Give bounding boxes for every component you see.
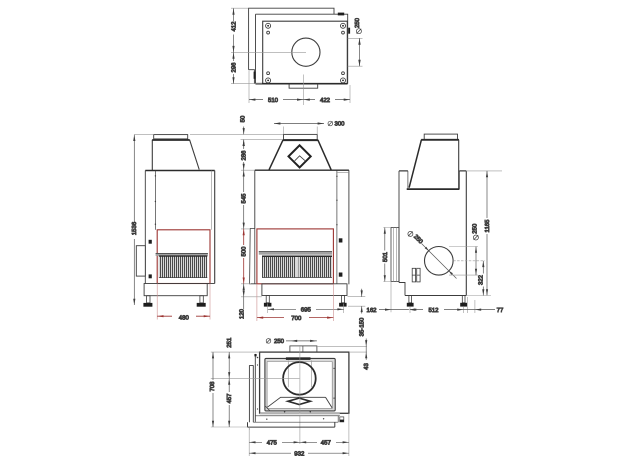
svg-text:500: 500 — [241, 246, 248, 257]
svg-text:43: 43 — [363, 363, 370, 370]
svg-text:300: 300 — [334, 121, 345, 128]
svg-text:162: 162 — [366, 307, 377, 314]
svg-text:932: 932 — [294, 450, 305, 457]
svg-text:286: 286 — [241, 150, 248, 161]
svg-text:512: 512 — [428, 307, 439, 314]
svg-text:1165: 1165 — [484, 219, 491, 233]
svg-text:422: 422 — [320, 97, 331, 104]
svg-text:510: 510 — [268, 97, 279, 104]
svg-text:120: 120 — [239, 308, 246, 319]
svg-text:412: 412 — [231, 21, 238, 32]
svg-text:77: 77 — [497, 307, 504, 314]
svg-text:457: 457 — [321, 440, 332, 447]
svg-text:50: 50 — [239, 115, 246, 122]
svg-text:296: 296 — [231, 62, 238, 73]
svg-text:322: 322 — [477, 274, 484, 285]
svg-text:35-150: 35-150 — [359, 317, 366, 336]
svg-text:501: 501 — [382, 251, 389, 262]
svg-text:250: 250 — [354, 17, 361, 28]
svg-text:700: 700 — [291, 315, 302, 322]
svg-text:250: 250 — [412, 233, 424, 245]
svg-text:545: 545 — [241, 193, 248, 204]
svg-text:250: 250 — [471, 223, 478, 234]
svg-text:1536: 1536 — [131, 221, 138, 235]
svg-text:695: 695 — [301, 307, 312, 314]
svg-text:250: 250 — [274, 338, 285, 345]
svg-text:251: 251 — [226, 337, 233, 348]
svg-text:708: 708 — [209, 381, 216, 392]
svg-text:475: 475 — [267, 440, 278, 447]
svg-text:480: 480 — [179, 314, 190, 321]
svg-text:457: 457 — [226, 393, 233, 404]
